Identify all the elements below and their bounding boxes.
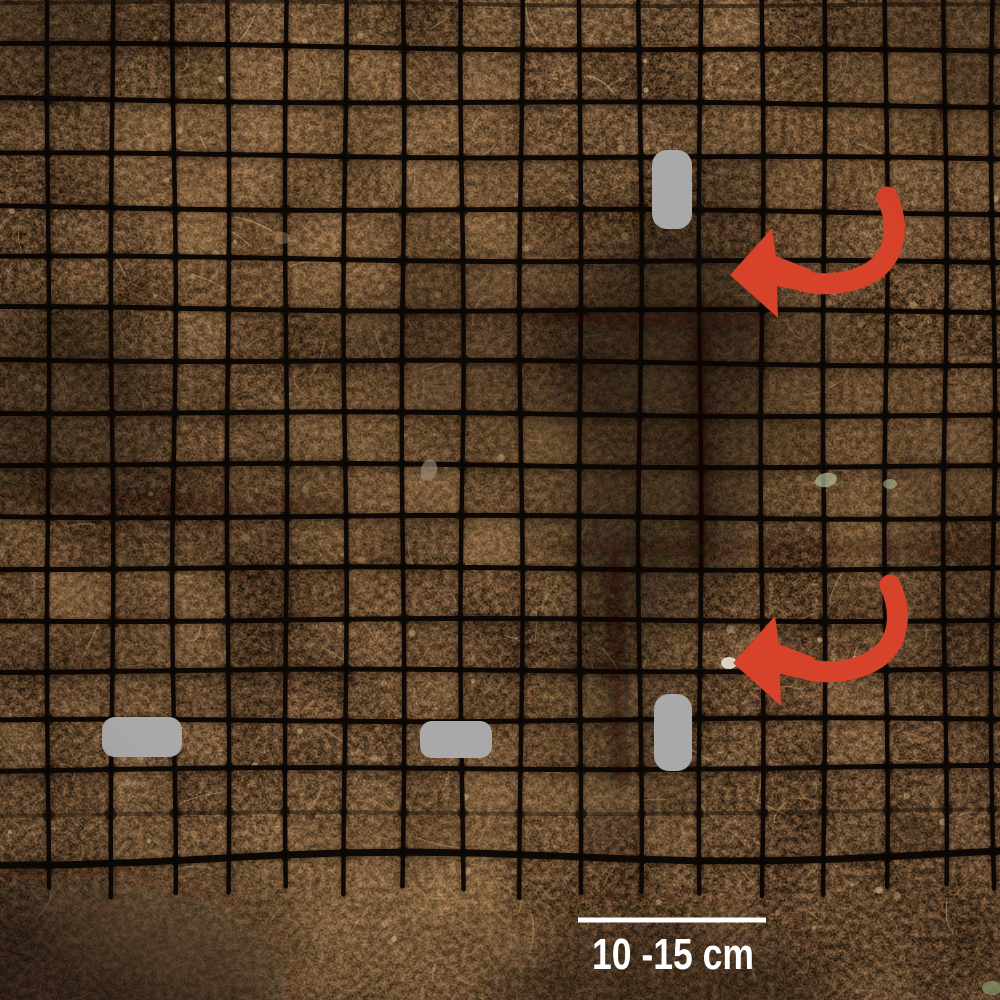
svg-text:10 -15 cm: 10 -15 cm	[592, 930, 754, 979]
